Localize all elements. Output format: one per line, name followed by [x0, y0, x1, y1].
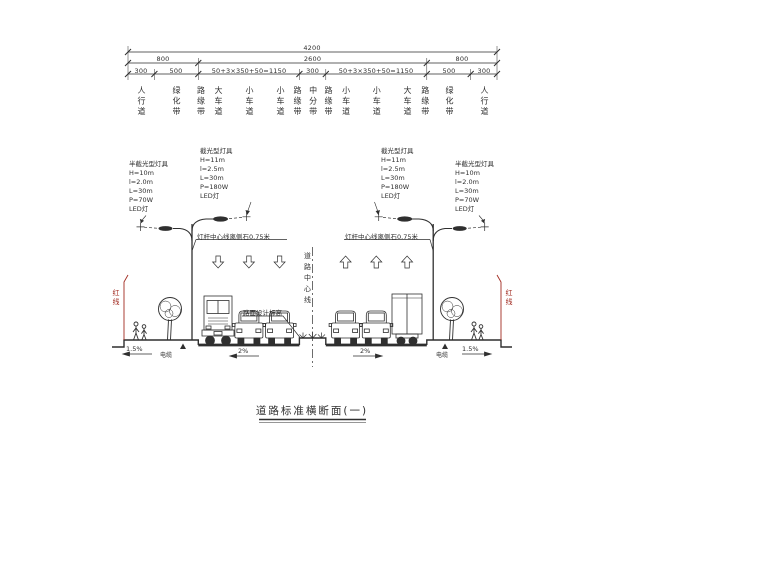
- slope-sidewalk-right: 1.5%: [462, 345, 479, 353]
- lane-label-greenbelt-left: 绿化带: [172, 86, 180, 118]
- dim-seg-2: 500: [169, 67, 182, 75]
- dim-group-right: 800: [455, 55, 468, 63]
- spec-leader-lines: [140, 202, 484, 223]
- luminaire-spec-outer-left: 半截光型灯具 H=10m l=2.0m L=30m P=70W LED灯: [129, 160, 168, 214]
- spec-line: L=30m: [455, 187, 494, 196]
- luminaire-spec-outer-right: 半截光型灯具 H=10m l=2.0m L=30m P=70W LED灯: [455, 160, 494, 214]
- road-ground-section: [112, 338, 512, 347]
- vehicle-truck-rear: [392, 294, 422, 345]
- road-centerline-label: 道路中心线: [304, 252, 311, 307]
- median-shrubs: [300, 332, 326, 339]
- dim-total: 4200: [303, 44, 320, 52]
- pole-offset-note-right: 灯杆中心线离侧石0.75米: [345, 231, 418, 241]
- spec-line: LED灯: [455, 205, 494, 214]
- lane-label-truck-lane-left: 大车道: [214, 86, 222, 118]
- spec-line: l=2.0m: [129, 178, 168, 187]
- spec-line: H=11m: [200, 156, 233, 165]
- dim-seg-5: 50+3×350+50=1150: [339, 67, 414, 75]
- lane-label-curbstrip-r1: 路缘带: [324, 86, 332, 118]
- dim-seg-1: 300: [134, 67, 147, 75]
- spec-line: l=2.5m: [200, 165, 233, 174]
- dim-seg-4: 300: [306, 67, 319, 75]
- lane-label-sidewalk-right: 人行道: [480, 86, 488, 118]
- red-line-label-right: 红线: [505, 289, 512, 307]
- cable-label-right: 电缆: [436, 350, 448, 359]
- slope-carriageway-right: 2%: [360, 347, 370, 355]
- lane-label-median: 中分带: [309, 86, 317, 118]
- lane-label-curbstrip-l1: 路缘带: [197, 86, 205, 118]
- spec-line: P=70W: [455, 196, 494, 205]
- lane-label-curbstrip-l2: 路缘带: [293, 86, 301, 118]
- dim-group-center: 2600: [304, 55, 321, 63]
- spec-line: L=30m: [200, 174, 233, 183]
- lane-label-greenbelt-right: 绿化带: [445, 86, 453, 118]
- spec-line: P=180W: [381, 183, 414, 192]
- luminaire-type: 半截光型灯具: [129, 160, 168, 169]
- spec-line: L=30m: [381, 174, 414, 183]
- vehicle-truck-front: [202, 296, 234, 345]
- lane-label-truck-lane-right: 大车道: [403, 86, 411, 118]
- lane-label-sidewalk-left: 人行道: [137, 86, 145, 118]
- pavement-design-elevation-note: 路面设计标高: [243, 307, 282, 317]
- vehicle-car-rear-2: [360, 311, 393, 345]
- lane-label-car-lane-l2: 小车道: [276, 86, 284, 118]
- lane-label-car-lane-l1: 小车道: [245, 86, 253, 118]
- spec-line: l=2.0m: [455, 178, 494, 187]
- dim-seg-7: 300: [477, 67, 490, 75]
- lane-label-car-lane-r1: 小车道: [342, 86, 350, 118]
- spec-line: LED灯: [381, 192, 414, 201]
- title-underline: [259, 420, 366, 423]
- spec-line: H=10m: [129, 169, 168, 178]
- spec-line: L=30m: [129, 187, 168, 196]
- spec-line: LED灯: [200, 192, 233, 201]
- lane-label-curbstrip-r2: 路缘带: [421, 86, 429, 118]
- dim-seg-3: 50+3×350+50=1150: [212, 67, 287, 75]
- spec-line: H=10m: [455, 169, 494, 178]
- vehicle-car-rear-1: [329, 311, 362, 345]
- spec-line: l=2.5m: [381, 165, 414, 174]
- slope-carriageway-left: 2%: [238, 347, 248, 355]
- lane-label-car-lane-r2: 小车道: [372, 86, 380, 118]
- cable-label-left: 电缆: [160, 350, 172, 359]
- luminaire-spec-inner-right: 截光型灯具 H=11m l=2.5m L=30m P=180W LED灯: [381, 147, 414, 201]
- luminaire-type: 半截光型灯具: [455, 160, 494, 169]
- slope-sidewalk-left: 1.5%: [126, 345, 143, 353]
- luminaire-spec-inner-left: 截光型灯具 H=11m l=2.5m L=30m P=180W LED灯: [200, 147, 233, 201]
- spec-line: H=11m: [381, 156, 414, 165]
- spec-line: LED灯: [129, 205, 168, 214]
- dim-seg-6: 500: [442, 67, 455, 75]
- dim-group-left: 800: [156, 55, 169, 63]
- luminaire-type: 截光型灯具: [200, 147, 233, 156]
- spec-line: P=70W: [129, 196, 168, 205]
- spec-line: P=180W: [200, 183, 233, 192]
- red-line-label-left: 红线: [112, 289, 119, 307]
- road-cross-section-drawing: 4200 800 2600 800 300 500 50+3×350+50=11…: [0, 0, 760, 570]
- pole-offset-note-left: 灯杆中心线离侧石0.75米: [197, 231, 270, 241]
- luminaire-type: 截光型灯具: [381, 147, 414, 156]
- drawing-title: 道路标准横断面(一): [256, 403, 368, 418]
